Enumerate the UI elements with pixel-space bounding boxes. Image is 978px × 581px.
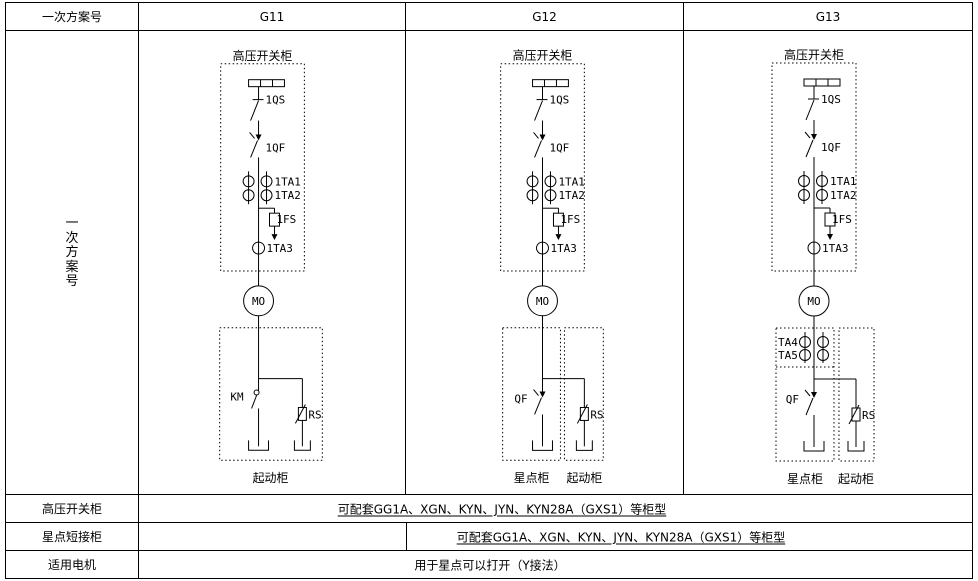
info-row-motor: 适用电机 用于星点可以打开（Y接法）	[6, 551, 972, 578]
arrester-1fs-icon: 1FS	[259, 208, 297, 240]
label-1ta3: 1TA3	[822, 242, 849, 255]
ct-1ta1-1ta2-icon: 1TA1 1TA2	[527, 171, 585, 204]
label-mo: MO	[807, 295, 820, 308]
label-1qf: 1QF	[549, 141, 569, 154]
hv-cabinet-label: 高压开关柜	[784, 47, 844, 62]
scheme-header-g12: G12	[406, 3, 684, 30]
busbar-icon	[249, 80, 285, 87]
label-1ta1: 1TA1	[558, 175, 584, 188]
label-1fs: 1FS	[832, 213, 852, 226]
hv-cabinet-label: 高压开关柜	[513, 48, 573, 63]
scheme-header-g13: G13	[684, 3, 972, 30]
header-row-label: 一次方案号	[6, 3, 139, 30]
contactor-km-icon: KM	[230, 390, 259, 408]
label-1qs: 1QS	[821, 93, 841, 106]
resistor-rs-icon: RS	[295, 379, 321, 447]
disconnector-1qs-icon: 1QS	[535, 94, 570, 121]
breaker-qf-icon: QF	[786, 390, 817, 415]
label-1fs: 1FS	[560, 213, 580, 226]
label-1fs: 1FS	[276, 213, 296, 226]
resistor-rs-icon: RS	[849, 379, 875, 447]
g13-star-cabinet: TA4 TA5 QF	[776, 328, 834, 461]
header-row: 一次方案号 G11 G12 G13	[6, 3, 972, 31]
info-row-text: 可配套GG1A、XGN、KYN、JYN、KYN28A（GXS1）等柜型	[457, 528, 786, 545]
hv-cabinet-box	[221, 64, 305, 271]
label-1ta2: 1TA2	[558, 189, 584, 202]
info-row-text: 可配套GG1A、XGN、KYN、JYN、KYN28A（GXS1）等柜型	[338, 500, 667, 517]
breaker-1qf-icon: 1QF	[250, 132, 286, 157]
busbar-icon	[533, 80, 569, 87]
g11-start-cabinet: KM RS	[220, 328, 323, 461]
ct-1ta1-1ta2-icon: 1TA1 1TA2	[243, 171, 301, 204]
label-1ta1: 1TA1	[274, 175, 300, 188]
scheme-table: 一次方案号 G11 G12 G13 一次方案号 高压开关柜	[5, 2, 973, 579]
info-row-hv-cabinet: 高压开关柜 可配套GG1A、XGN、KYN、JYN、KYN28A（GXS1）等柜…	[6, 495, 972, 523]
label-ta5: TA5	[778, 349, 798, 362]
diagram-g11: 高压开关柜 1QS	[139, 31, 405, 495]
label-1ta2: 1TA2	[830, 189, 857, 202]
start-cabinet-label: 起动柜	[838, 472, 874, 486]
side-label-cell: 一次方案号	[6, 31, 139, 494]
scheme-header-g11: G11	[139, 3, 406, 30]
label-rs: RS	[308, 408, 321, 421]
label-1qs: 1QS	[266, 94, 286, 107]
label-1ta3: 1TA3	[550, 242, 576, 255]
motor-icon: MO	[799, 286, 829, 316]
disconnector-1qs-icon: 1QS	[806, 93, 841, 120]
label-1qf: 1QF	[266, 141, 286, 154]
label-qf: QF	[786, 393, 799, 406]
label-qf: QF	[514, 392, 527, 405]
star-cabinet-box	[503, 328, 561, 461]
info-row-star-cabinet: 星点短接柜 可配套GG1A、XGN、KYN、JYN、KYN28A（GXS1）等柜…	[6, 523, 972, 551]
arrester-1fs-icon: 1FS	[543, 208, 581, 240]
g12-start-cabinet: RS	[543, 328, 604, 461]
info-row-label: 高压开关柜	[6, 495, 139, 522]
motor-icon: MO	[244, 286, 274, 316]
hv-cabinet-label: 高压开关柜	[233, 48, 293, 63]
diagram-g11-cell: 高压开关柜 1QS	[139, 31, 406, 494]
motor-icon: MO	[528, 286, 558, 316]
info-row-label: 适用电机	[6, 551, 139, 578]
label-mo: MO	[536, 295, 549, 308]
label-rs: RS	[862, 409, 875, 422]
label-rs: RS	[590, 408, 603, 421]
info-row-text: 用于星点可以打开（Y接法）	[414, 556, 565, 573]
start-cabinet-label: 起动柜	[566, 471, 602, 485]
label-1ta1: 1TA1	[830, 175, 857, 188]
ct-1ta1-1ta2-icon: 1TA1 1TA2	[799, 171, 857, 204]
resistor-rs-icon: RS	[577, 379, 603, 447]
busbar-icon	[804, 79, 840, 86]
label-km: KM	[230, 390, 244, 403]
label-1qf: 1QF	[821, 141, 841, 154]
star-cabinet-label: 星点柜	[787, 472, 823, 486]
star-cabinet-label: 星点柜	[514, 471, 550, 485]
arrester-1fs-icon: 1FS	[814, 208, 852, 240]
empty-cell	[139, 523, 407, 550]
g12-hv-cabinet: 高压开关柜 1QS	[501, 48, 585, 286]
label-1qs: 1QS	[549, 94, 569, 107]
ct-ta4-ta5-icon: TA4 TA5	[776, 332, 834, 367]
diagram-g12: 高压开关柜 1QS	[406, 31, 683, 495]
g12-star-cabinet: QF	[503, 328, 561, 461]
start-cabinet-label: 起动柜	[253, 471, 289, 485]
diagram-g13-cell: 高压开关柜 1QS	[684, 31, 972, 494]
diagram-g13: 高压开关柜 1QS	[684, 31, 972, 495]
info-row-label: 星点短接柜	[6, 523, 139, 550]
diagram-g12-cell: 高压开关柜 1QS	[406, 31, 684, 494]
label-1ta3: 1TA3	[267, 242, 293, 255]
label-ta4: TA4	[778, 336, 798, 349]
diagram-row: 一次方案号 高压开关柜 1QS	[6, 31, 972, 495]
label-1ta2: 1TA2	[274, 189, 300, 202]
g13-hv-cabinet: 高压开关柜 1QS	[772, 47, 857, 286]
disconnector-1qs-icon: 1QS	[251, 94, 286, 121]
side-label-vertical: 一次方案号	[65, 217, 79, 290]
breaker-qf-icon: QF	[514, 390, 545, 415]
g11-hv-cabinet: 高压开关柜 1QS	[221, 48, 305, 286]
breaker-1qf-icon: 1QF	[534, 132, 570, 157]
breaker-1qf-icon: 1QF	[805, 132, 841, 157]
label-mo: MO	[252, 295, 265, 308]
